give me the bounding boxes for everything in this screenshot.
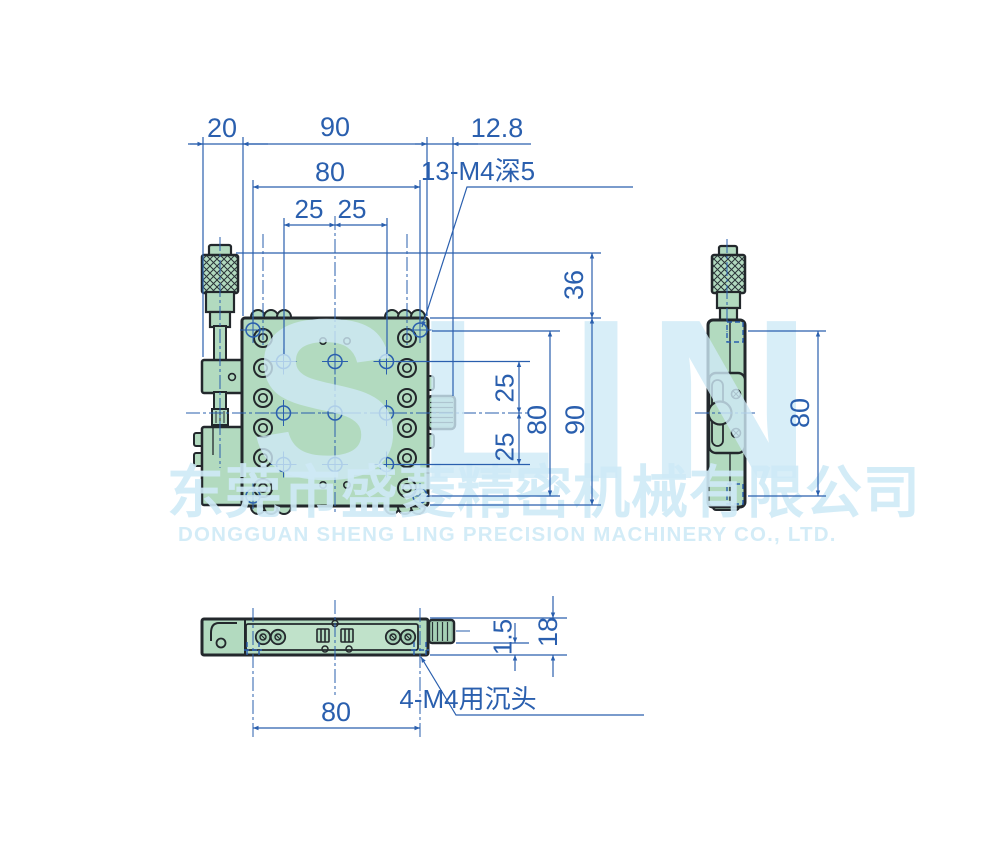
dim-hole-pitch-v-bottom: 25 [490,433,520,462]
dim-base-thickness: 18 [533,617,563,647]
dim-hole-pitch-h-right: 25 [338,194,367,224]
dim-knob-protrusion: 12.8 [471,113,524,143]
label-thread-holes: 13-M4深5 [421,156,535,186]
dim-mount-hole-span-h: 80 [315,157,345,187]
label-counterbore-holes: 4-M4用沉头 [399,684,536,714]
dim-plate-step: 1.5 [488,619,518,655]
dim-overall-width: 90 [320,112,350,142]
dim-hole-pitch-h-left: 25 [295,194,324,224]
dim-side-hole-span: 80 [785,398,815,428]
watermark-company-en: DONGGUAN SHENG LING PRECISION MACHINERY … [178,523,837,546]
dim-overall-height: 90 [560,405,590,435]
dim-hole-pitch-v-top: 25 [490,374,520,403]
technical-drawing-page: SLIN 东莞市盛菱精密机械有限公司 DONGGUAN SHENG LING P… [0,0,1001,853]
dim-micrometer-height: 36 [559,270,589,300]
watermark-company-cn: 东莞市盛菱精密机械有限公司 [167,461,921,525]
dim-micrometer-offset: 20 [207,113,237,143]
dim-mount-hole-span-v: 80 [522,405,552,435]
stage-dimension-drawing: SLIN 东莞市盛菱精密机械有限公司 DONGGUAN SHENG LING P… [0,0,1001,853]
dim-counterbore-span: 80 [321,697,351,727]
micrometer-bracket [202,360,243,425]
